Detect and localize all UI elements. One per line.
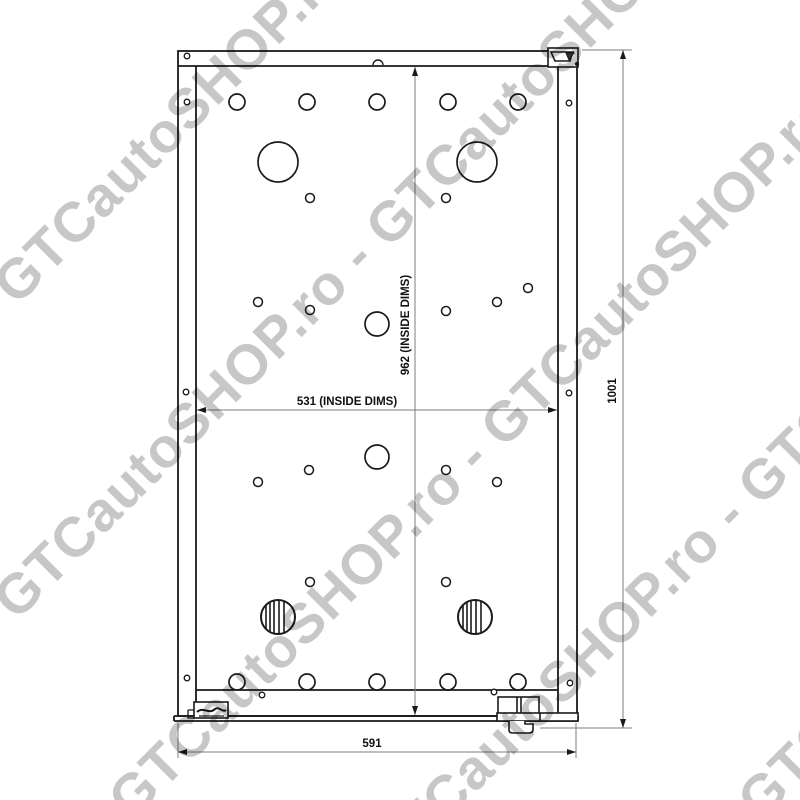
hatched-grommet-holes — [261, 598, 492, 636]
dimension-overall-height: 1001 — [540, 50, 632, 728]
inside-width-label: 531 (INSIDE DIMS) — [297, 396, 397, 408]
dimension-inside-width: 531 (INSIDE DIMS) — [197, 396, 557, 413]
overall-width-label: 591 — [362, 738, 382, 750]
door-panel-drawing: 962 (INSIDE DIMS) 531 (INSIDE DIMS) 1001… — [0, 0, 800, 800]
overall-height-label: 1001 — [607, 378, 619, 404]
panel-frame — [174, 51, 578, 721]
dimension-inside-height: 962 (INSIDE DIMS) — [400, 67, 418, 715]
bottom-left-latch — [188, 702, 228, 718]
panel-holes — [183, 53, 573, 698]
inside-height-label: 962 (INSIDE DIMS) — [400, 275, 412, 375]
technical-drawing-page: 962 (INSIDE DIMS) 531 (INSIDE DIMS) 1001… — [0, 0, 800, 800]
top-right-latch — [548, 48, 579, 67]
